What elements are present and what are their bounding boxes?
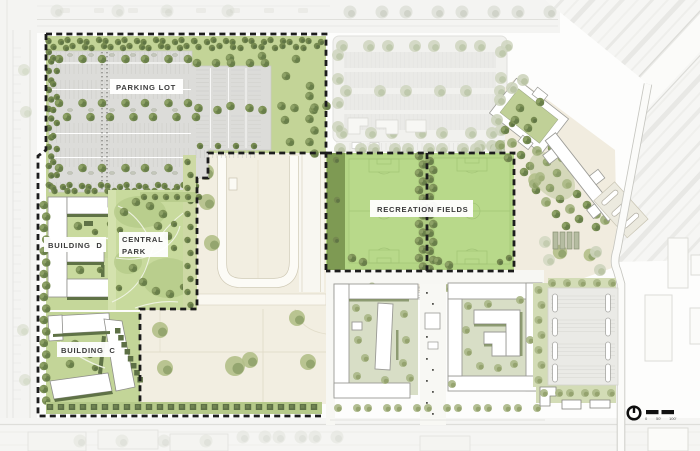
- svg-text:PARKING LOT: PARKING LOT: [116, 83, 176, 92]
- svg-text:50': 50': [656, 416, 661, 421]
- svg-text:PARK: PARK: [122, 247, 146, 256]
- svg-text:BUILDING D: BUILDING D: [48, 241, 103, 250]
- svg-text:100': 100': [669, 416, 677, 421]
- svg-text:BUILDING C: BUILDING C: [61, 346, 116, 355]
- svg-text:RECREATION FIELDS: RECREATION FIELDS: [377, 205, 469, 214]
- svg-text:CENTRAL: CENTRAL: [122, 235, 164, 244]
